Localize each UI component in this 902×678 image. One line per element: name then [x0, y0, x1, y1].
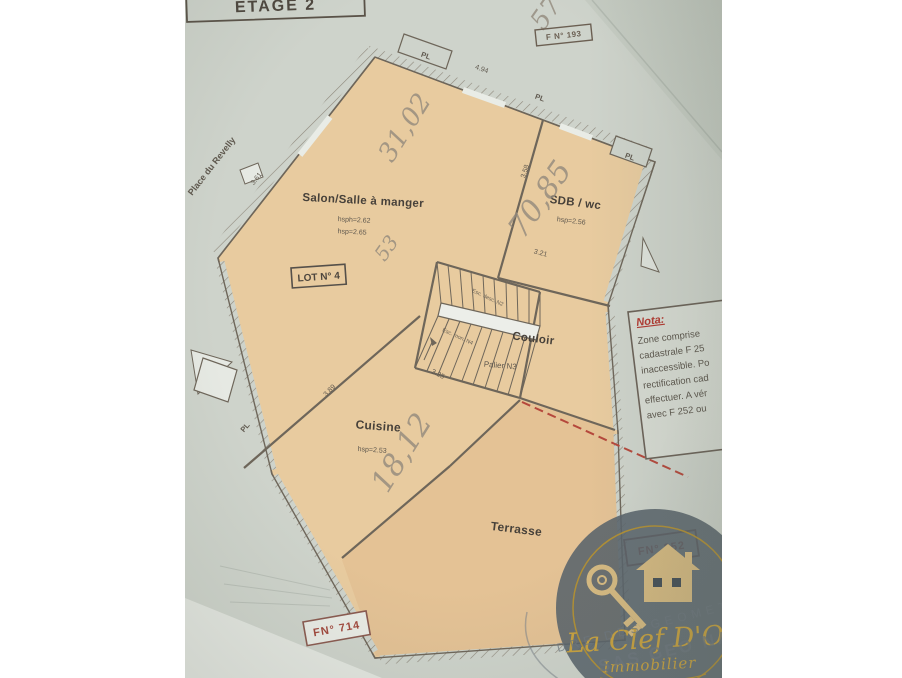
- photo-vignette: [185, 0, 722, 678]
- floorplan-photo: Esc. desc. N2 Esc. mon. N4 Salon/Salle à…: [0, 0, 902, 678]
- floorplan-svg: Esc. desc. N2 Esc. mon. N4 Salon/Salle à…: [0, 0, 902, 678]
- photo-area: Esc. desc. N2 Esc. mon. N4 Salon/Salle à…: [185, 0, 795, 678]
